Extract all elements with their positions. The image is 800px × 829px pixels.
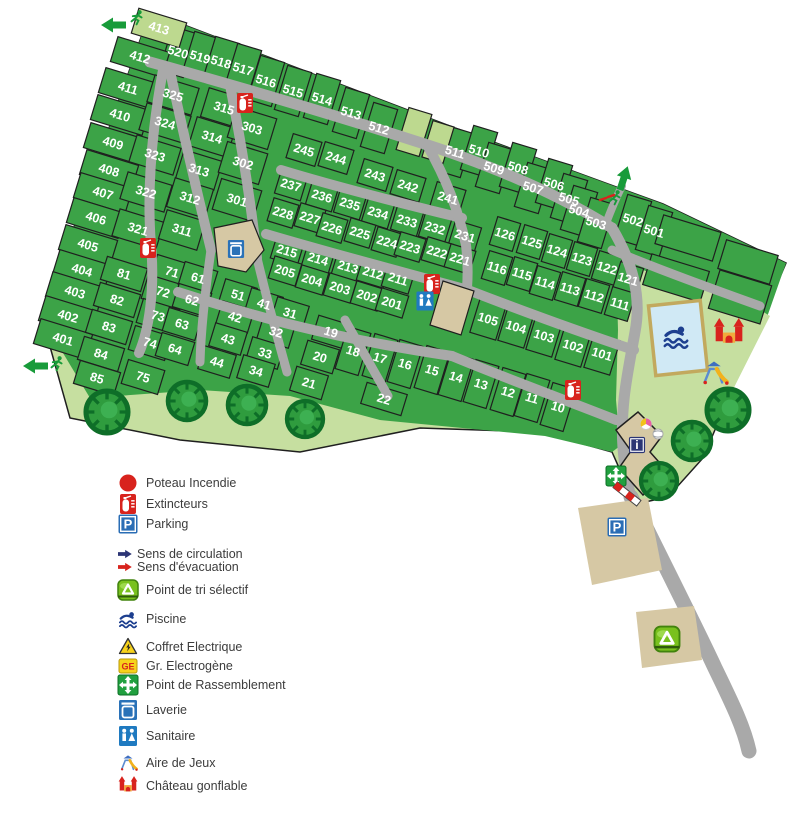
laundry-icon — [228, 240, 244, 258]
ge-glyph: GE — [121, 661, 134, 671]
recycle-icon — [655, 627, 680, 652]
extinguisher-icon — [140, 238, 156, 258]
extinguisher-icon — [237, 93, 253, 113]
legend-label: Sens d'évacuation — [137, 560, 239, 574]
parking-icon: P — [608, 518, 627, 537]
legend-item: Poteau Incendie — [120, 475, 237, 492]
legend: Poteau IncendieExtincteursPParkingSens d… — [118, 475, 286, 794]
arrow-evacuation-icon — [118, 563, 132, 571]
legend-label: Laverie — [146, 703, 187, 717]
legend-item: GEGr. Electrogène — [119, 659, 233, 673]
parking-glyph: P — [124, 516, 133, 531]
legend-label: Sanitaire — [146, 729, 195, 743]
extinguisher-icon — [565, 380, 581, 400]
info-icon: i — [629, 437, 645, 453]
tree-icon — [228, 386, 266, 424]
legend-item: Sanitaire — [119, 726, 195, 746]
swimmer-icon — [120, 612, 136, 627]
legend-item: Sens d'évacuation — [118, 560, 239, 574]
warning-icon — [120, 639, 137, 654]
laundry-icon — [119, 700, 137, 720]
volleyball-icon — [653, 429, 663, 439]
recycle-icon — [118, 580, 138, 600]
parking-lot — [578, 498, 662, 585]
playground-icon — [121, 755, 138, 771]
hydrant-icon — [120, 475, 137, 492]
legend-label: Parking — [146, 517, 188, 531]
legend-item: Extincteurs — [120, 494, 208, 514]
extinguisher-icon — [120, 494, 136, 514]
campsite-map: 5205195185175165155145135125115105095085… — [0, 0, 800, 829]
extinguisher-icon — [140, 238, 156, 258]
tree-icon — [86, 391, 128, 433]
campsite-map-page: 5205195185175165155145135125115105095085… — [0, 0, 800, 829]
legend-item: Point de Rassemblement — [118, 675, 286, 695]
swimmer-icon — [120, 612, 136, 627]
legend-label: Extincteurs — [146, 497, 208, 511]
tree-icon — [287, 401, 323, 437]
bouncy-castle-icon — [119, 776, 138, 791]
hydrant-icon — [120, 475, 137, 492]
sanitary-icon — [119, 726, 137, 746]
tree-icon — [673, 422, 711, 460]
info-glyph: i — [635, 438, 638, 452]
bouncy-castle-icon — [119, 776, 138, 791]
exit-arrow-icon — [101, 18, 126, 33]
sanitary-icon — [119, 726, 137, 746]
parking-icon: P — [119, 515, 138, 534]
legend-item: PParking — [119, 515, 189, 534]
legend-label: Point de tri sélectif — [146, 583, 249, 597]
ge-icon: GE — [119, 659, 137, 673]
beach-ball-icon — [640, 419, 651, 430]
recycle-icon — [655, 627, 680, 652]
laundry-icon — [228, 240, 244, 258]
volleyball-icon — [653, 429, 663, 439]
parking-glyph: P — [613, 519, 622, 534]
legend-item: Sens de circulation — [118, 547, 243, 561]
assembly-icon — [118, 675, 138, 695]
exit-arrow-icon — [23, 359, 48, 374]
legend-item: Château gonflable — [119, 776, 248, 793]
warning-icon — [120, 639, 137, 654]
playground-icon — [121, 755, 138, 771]
legend-label: Aire de Jeux — [146, 756, 216, 770]
beach-ball-icon — [640, 419, 651, 430]
extinguisher-icon — [424, 274, 440, 294]
tree-icon — [641, 463, 677, 499]
arrow-circulation-icon — [118, 550, 132, 558]
assembly-icon — [118, 675, 138, 695]
tree-icon — [168, 382, 206, 420]
legend-label: Gr. Electrogène — [146, 659, 233, 673]
legend-item: Aire de Jeux — [121, 755, 216, 771]
legend-item: Point de tri sélectif — [118, 580, 249, 600]
legend-label: Coffret Electrique — [146, 640, 242, 654]
legend-item: Laverie — [119, 700, 187, 720]
extinguisher-icon — [237, 93, 253, 113]
laundry-icon — [119, 700, 137, 720]
legend-label: Sens de circulation — [137, 547, 243, 561]
legend-label: Poteau Incendie — [146, 476, 236, 490]
legend-item: Piscine — [120, 612, 186, 627]
recycle-icon — [118, 580, 138, 600]
legend-label: Point de Rassemblement — [146, 678, 286, 692]
sanitary-icon — [416, 292, 433, 311]
sanitary-icon — [416, 292, 433, 311]
extinguisher-icon — [120, 494, 136, 514]
extinguisher-icon — [565, 380, 581, 400]
extinguisher-icon — [424, 274, 440, 294]
legend-item: Coffret Electrique — [120, 639, 243, 655]
legend-label: Château gonflable — [146, 779, 248, 793]
tree-icon — [707, 389, 749, 431]
legend-label: Piscine — [146, 612, 186, 626]
